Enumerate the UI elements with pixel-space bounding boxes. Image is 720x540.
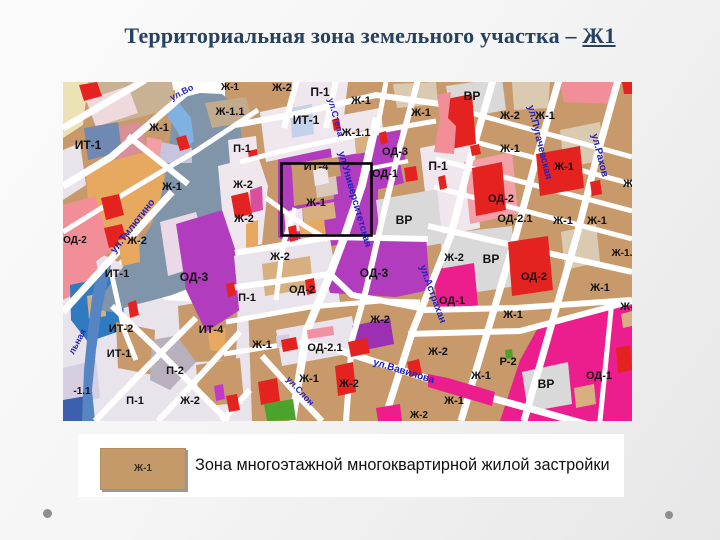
svg-text:П-1: П-1 [428,159,448,173]
svg-text:Ж-1: Ж-1 [305,197,326,209]
svg-text:ИТ-1: ИТ-1 [75,138,102,152]
svg-text:Р-2: Р-2 [499,356,516,368]
svg-text:П-1: П-1 [233,143,251,155]
svg-text:ОД-2.1: ОД-2.1 [497,213,532,225]
svg-text:Ж-1: Ж-1 [499,143,520,155]
svg-text:Ж-1.: Ж-1. [611,248,632,259]
svg-text:ВР: ВР [483,252,500,266]
svg-text:ИТ-4: ИТ-4 [304,161,329,173]
svg-text:Ж-2: Ж-2 [338,378,359,390]
svg-text:Ж-1: Ж-1 [470,370,491,382]
svg-text:Ж-1: Ж-1 [161,181,182,193]
svg-text:ОД-3: ОД-3 [382,146,408,158]
svg-text:ОД-2: ОД-2 [488,193,514,205]
svg-text:Ж-2: Ж-2 [409,410,428,421]
svg-text:Ж-1: Ж-1 [553,161,574,173]
svg-text:ВР: ВР [538,377,555,391]
svg-text:ИТ-1: ИТ-1 [107,348,131,360]
svg-text:П-1: П-1 [310,85,330,99]
svg-text:ОД-2: ОД-2 [289,284,315,296]
svg-text:Ж-1: Ж-1 [552,215,573,227]
svg-text:Ж-1: Ж-1 [589,282,610,294]
svg-text:ОД-2: ОД-2 [63,235,87,246]
svg-text:Ж-1: Ж-1 [443,395,464,407]
svg-text:Ж-1: Ж-1 [148,122,169,134]
svg-text:Ж-1: Ж-1 [251,339,272,351]
svg-text:Ж-1: Ж-1 [586,215,607,227]
svg-text:Ж-1: Ж-1 [410,107,431,119]
svg-text:Ж-2: Ж-2 [179,395,200,407]
svg-text:П-1: П-1 [126,395,144,407]
svg-text:Ж-2: Ж-2 [427,346,448,358]
svg-text:Ж-2: Ж-2 [369,314,390,326]
svg-text:Ж-1: Ж-1 [350,95,371,107]
svg-text:ОД-3: ОД-3 [180,270,209,284]
svg-text:Ж-2: Ж-2 [233,213,254,225]
svg-text:ОД-1: ОД-1 [372,168,398,180]
svg-text:П-2: П-2 [166,365,184,377]
svg-text:ОД-2.1: ОД-2.1 [307,342,342,354]
svg-text:Ж-2: Ж-2 [232,179,253,191]
svg-text:ОД-2: ОД-2 [521,271,547,283]
svg-text:Ж-2: Ж-2 [499,110,520,122]
svg-text:Ж-1: Ж-1 [220,82,239,93]
svg-text:Ж-2: Ж-2 [269,251,290,263]
svg-text:Ж-2: Ж-2 [443,252,464,264]
svg-text:ВР: ВР [396,213,413,227]
svg-text:Ж-2: Ж-2 [271,82,292,94]
svg-text:Ж: Ж [622,178,632,190]
svg-text:Ж-1: Ж-1 [619,301,632,313]
svg-text:Ж-1.1: Ж-1.1 [215,106,245,118]
svg-text:ИТ-1: ИТ-1 [293,113,320,127]
svg-text:ОД-1: ОД-1 [586,370,612,382]
svg-text:ИТ-2: ИТ-2 [109,323,133,335]
svg-text:Ж-1: Ж-1 [298,373,319,385]
svg-text:П-1: П-1 [238,292,256,304]
svg-text:ИТ-4: ИТ-4 [199,324,224,336]
svg-text:-1.1: -1.1 [73,386,91,397]
svg-text:ОД-3: ОД-3 [360,266,389,280]
svg-text:ВР: ВР [464,89,481,103]
svg-text:ИТ-1: ИТ-1 [105,268,129,280]
svg-text:Ж-1: Ж-1 [502,309,523,321]
